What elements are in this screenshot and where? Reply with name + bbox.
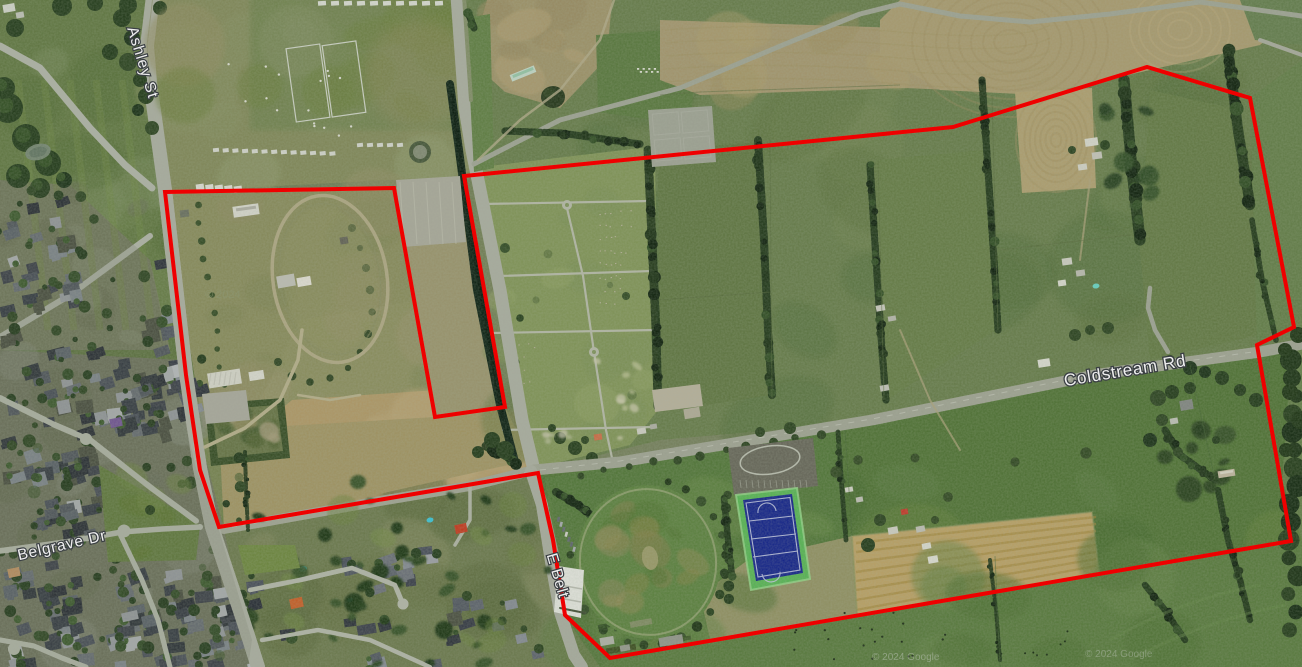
- svg-text:© 2024 Google: © 2024 Google: [1085, 649, 1153, 660]
- svg-text:© 2024 Google: © 2024 Google: [872, 652, 940, 663]
- svg-text:© 2024: © 2024: [205, 289, 241, 301]
